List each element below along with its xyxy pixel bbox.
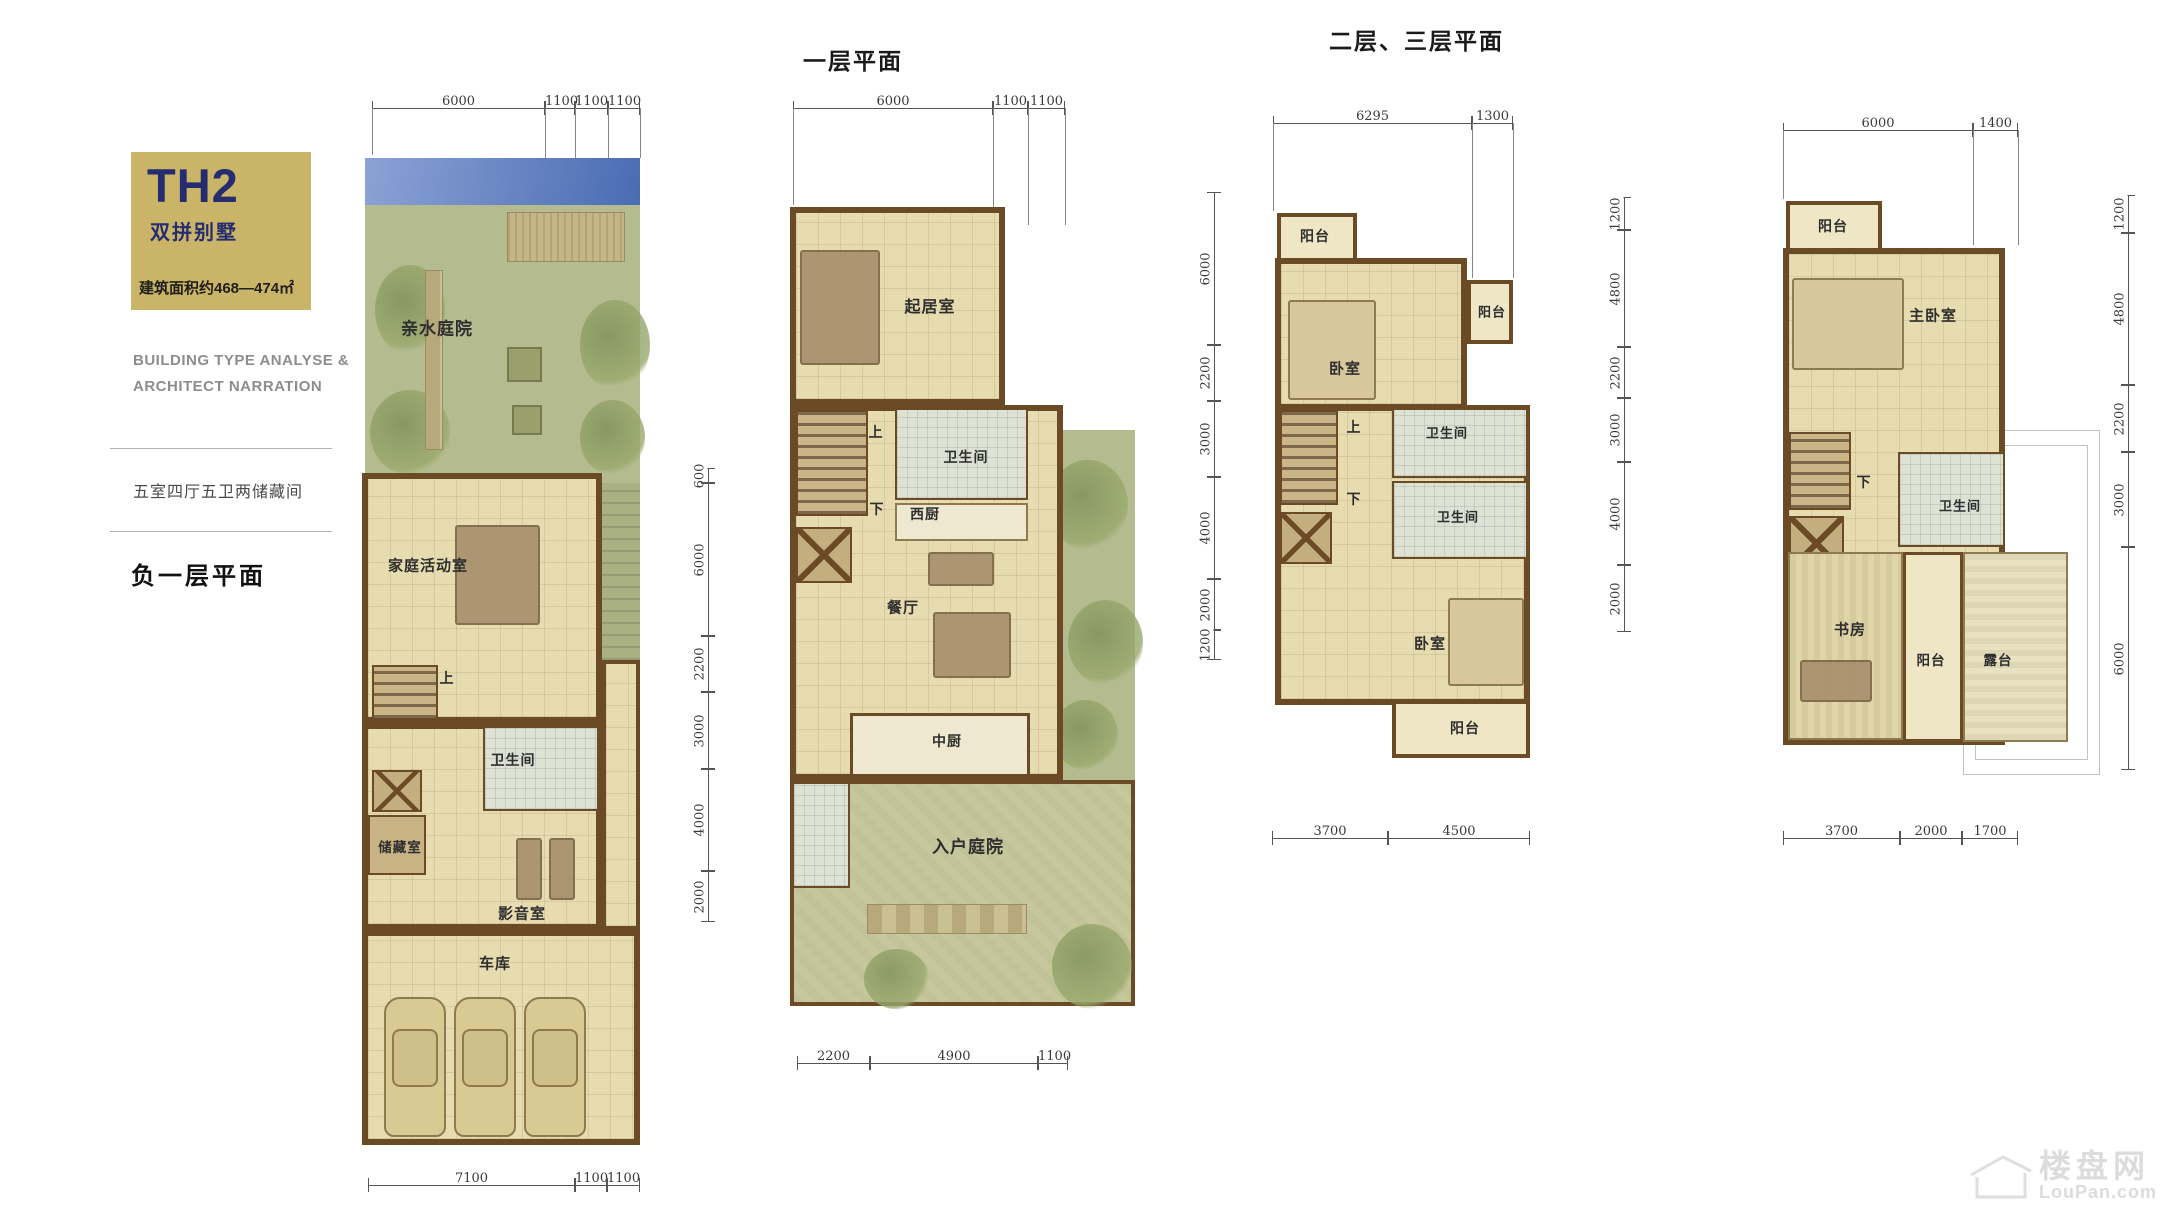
recliner-graphic (549, 838, 575, 900)
car-graphic (384, 997, 446, 1137)
unit-code-card: TH2 双拼别墅 建筑面积约468—474㎡ (131, 152, 311, 310)
en-subtitle-line2: ARCHITECT NARRATION (133, 374, 349, 400)
floorplan-page: TH2 双拼别墅 建筑面积约468—474㎡ BUILDING TYPE ANA… (0, 0, 2171, 1212)
room-label-terrace: 露台 (1984, 649, 2013, 669)
elevator-graphic (1280, 512, 1332, 564)
garden-feature (512, 405, 542, 435)
dining-table-graphic (933, 612, 1011, 678)
stairs-graphic (1280, 410, 1338, 505)
room-label-family-room: 家庭活动室 (388, 555, 468, 576)
dim-segment: 2000 (1900, 822, 1962, 839)
extension-line (575, 108, 576, 158)
room-label-bathroom: 卫生间 (1939, 496, 1981, 515)
extension-line (2018, 130, 2019, 245)
dim-segment: 1200 (1608, 197, 1625, 230)
dim-segment: 1100 (575, 1169, 607, 1186)
dim-segment: 1100 (1028, 92, 1065, 109)
stairs-graphic (372, 665, 438, 720)
room-label-down: 下 (870, 499, 885, 519)
elevator-graphic (372, 770, 422, 812)
room-label-entry-courtyard: 入户庭院 (932, 833, 1004, 858)
room-label-bathroom: 卫生间 (491, 750, 536, 770)
room-label-up: 上 (1347, 417, 1362, 437)
balcony (1903, 552, 1963, 742)
tree (1052, 924, 1132, 1009)
divider (110, 448, 332, 449)
stairs-graphic (1789, 432, 1851, 510)
side-garden (1063, 430, 1135, 782)
dim-segment: 1100 (1038, 1047, 1068, 1064)
dim-segment: 4000 (692, 769, 709, 871)
extension-line (1273, 123, 1274, 211)
room-label-up: 上 (440, 668, 455, 688)
dim-segment: 2200 (2112, 385, 2129, 452)
terrace (1963, 552, 2068, 742)
dim-segment: 1200 (1198, 630, 1215, 660)
water-garden (365, 205, 640, 483)
room-label-master-bedroom: 主卧室 (1909, 305, 1957, 326)
dim-segment: 3000 (2112, 452, 2129, 547)
watermark-en: LouPan.com (2039, 1182, 2157, 1204)
side-wing (602, 660, 640, 930)
room-label-chinese-kitchen: 中厨 (932, 731, 962, 751)
extension-line (608, 108, 609, 158)
dim-segment: 4800 (1608, 230, 1625, 347)
island-counter-graphic (928, 552, 994, 586)
room-label-bathroom: 卫生间 (944, 447, 989, 467)
dim-segment: 2200 (692, 636, 709, 692)
room-label-dining-room: 餐厅 (887, 597, 919, 618)
bathroom-area (1392, 408, 1528, 478)
room-label-media-room: 影音室 (498, 903, 546, 924)
extension-line (372, 108, 373, 155)
extension-line (640, 108, 641, 158)
dim-segment: 6000 (793, 92, 993, 109)
room-label-balcony: 阳台 (1478, 302, 1506, 321)
basement-plan-title: 负一层平面 (131, 556, 266, 591)
recliner-graphic (516, 838, 542, 900)
entry-porch (792, 782, 850, 888)
room-label-living-room: 起居室 (904, 293, 955, 317)
dim-segment: 6000 (2112, 547, 2129, 770)
extension-line (1783, 130, 1784, 199)
dim-segment: 3000 (1608, 398, 1625, 462)
dim-segment: 1200 (2112, 195, 2129, 233)
tree (1068, 600, 1143, 685)
watermark-text: 楼盘网 LouPan.com (2039, 1150, 2157, 1204)
dim-segment: 4800 (2112, 233, 2129, 385)
room-label-study: 书房 (1834, 619, 1866, 640)
room-label-garage: 车库 (479, 953, 511, 974)
floor1-plan-title: 一层平面 (803, 42, 903, 76)
bed-graphic (1448, 598, 1524, 686)
garden-feature (507, 347, 542, 382)
dim-segment: 2200 (1198, 345, 1215, 401)
dim-segment: 2000 (692, 871, 709, 922)
unit-area: 建筑面积约468—474㎡ (139, 277, 294, 298)
stepping-stones (425, 270, 443, 450)
dim-segment: 6000 (372, 92, 545, 109)
dim-segment: 6295 (1273, 107, 1472, 124)
dim-segment: 1100 (607, 1169, 640, 1186)
dim-segment: 4500 (1388, 822, 1530, 839)
bed-graphic (1288, 300, 1376, 400)
dim-segment: 3000 (692, 692, 709, 769)
room-label-water-garden: 亲水庭院 (401, 315, 473, 340)
room-label-down: 下 (1347, 489, 1362, 509)
room-label-balcony: 阳台 (1300, 226, 1330, 246)
tree (580, 400, 645, 475)
divider (110, 531, 332, 532)
dim-segment: 2000 (1198, 579, 1215, 630)
dim-segment: 4000 (1198, 477, 1215, 579)
room-label-bathroom2: 卫生间 (1437, 507, 1479, 526)
extension-line (545, 108, 546, 158)
room-label-storage: 储藏室 (378, 836, 422, 856)
room-label-west-kitchen: 西厨 (910, 504, 940, 524)
room-label-bathroom1: 卫生间 (1426, 423, 1468, 442)
dim-segment: 3700 (1783, 822, 1900, 839)
dim-segment: 6000 (1198, 192, 1215, 345)
dim-segment: 1300 (1472, 107, 1513, 124)
room-label-bedroom1: 卧室 (1329, 358, 1361, 379)
room-label-bedroom2: 卧室 (1414, 633, 1446, 654)
garden-steps (602, 483, 640, 660)
dim-segment: 4900 (870, 1047, 1038, 1064)
extension-line (1973, 130, 1974, 245)
dim-segment: 2000 (1608, 565, 1625, 632)
planter (867, 904, 1027, 934)
dim-segment: 1100 (993, 92, 1028, 109)
extension-line (1513, 123, 1514, 278)
stairs-graphic (796, 410, 868, 516)
desk-graphic (1800, 660, 1872, 702)
en-subtitle: BUILDING TYPE ANALYSE & ARCHITECT NARRAT… (133, 348, 349, 400)
extension-line (1472, 123, 1473, 278)
tree (864, 949, 929, 1009)
dim-segment: 6000 (692, 483, 709, 636)
room-label-balcony: 阳台 (1917, 649, 1946, 669)
study (1788, 552, 1903, 740)
dim-segment: 1100 (608, 92, 640, 109)
water-feature (365, 158, 640, 205)
extension-line (793, 108, 794, 205)
dim-segment: 1100 (575, 92, 608, 109)
dim-segment: 4000 (1608, 462, 1625, 565)
room-label-down: 下 (1857, 472, 1872, 492)
house-icon (1969, 1153, 2033, 1201)
room-label-balcony: 阳台 (1450, 718, 1480, 738)
elevator-graphic (796, 527, 852, 583)
dim-segment: 6000 (1783, 114, 1973, 131)
extension-line (1065, 108, 1066, 225)
dim-segment: 1400 (1973, 114, 2018, 131)
dim-segment: 600 (692, 468, 709, 483)
dim-segment: 2200 (797, 1047, 870, 1064)
car-graphic (454, 997, 516, 1137)
watermark-cn: 楼盘网 (2039, 1150, 2157, 1182)
dim-segment: 3000 (1198, 401, 1215, 477)
unit-code: TH2 (147, 162, 239, 209)
unit-type: 双拼别墅 (150, 216, 238, 245)
extension-line (1028, 108, 1029, 225)
dim-segment: 1100 (545, 92, 575, 109)
dim-segment: 7100 (368, 1169, 575, 1186)
room-label-balcony: 阳台 (1818, 216, 1848, 236)
layout-summary: 五室四厅五卫两储藏间 (133, 478, 303, 502)
sofa-graphic (800, 250, 880, 365)
room-label-up: 上 (869, 422, 884, 442)
dim-segment: 3700 (1272, 822, 1388, 839)
floor23-plan-title: 二层、三层平面 (1329, 22, 1504, 56)
watermark: 楼盘网 LouPan.com (1969, 1150, 2157, 1204)
bed-graphic (1792, 278, 1904, 370)
tree (580, 300, 650, 390)
dim-segment: 2200 (1608, 347, 1625, 398)
trellis (507, 212, 625, 262)
dim-segment: 1700 (1962, 822, 2018, 839)
en-subtitle-line1: BUILDING TYPE ANALYSE & (133, 348, 349, 374)
car-graphic (524, 997, 586, 1137)
